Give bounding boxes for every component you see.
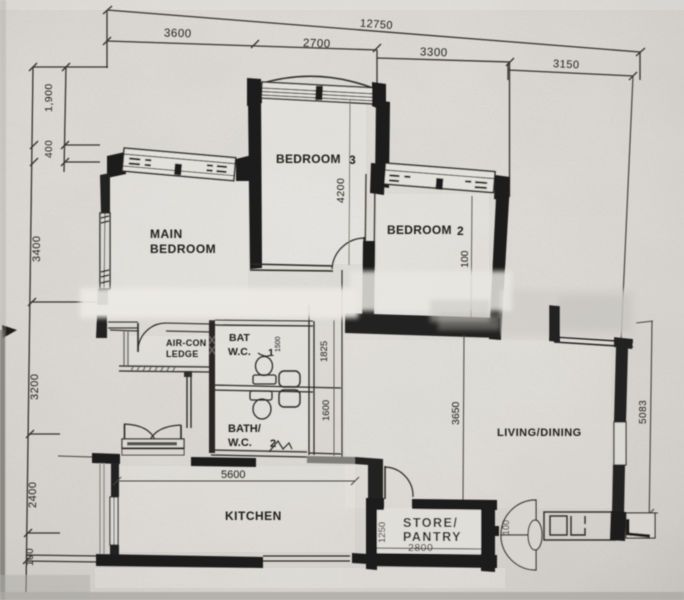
svg-text:3400: 3400 bbox=[31, 236, 43, 262]
svg-text:100: 100 bbox=[459, 250, 471, 268]
svg-text:MAIN: MAIN bbox=[150, 227, 183, 241]
svg-text:1: 1 bbox=[268, 347, 274, 359]
svg-text:1,900: 1,900 bbox=[43, 83, 55, 112]
svg-text:LIVING/DINING: LIVING/DINING bbox=[497, 427, 582, 439]
svg-text:1500: 1500 bbox=[275, 336, 282, 352]
svg-text:2800: 2800 bbox=[408, 542, 433, 554]
svg-text:400: 400 bbox=[44, 140, 55, 158]
svg-text:3150: 3150 bbox=[553, 58, 580, 71]
svg-text:3200: 3200 bbox=[29, 374, 41, 400]
svg-text:5083: 5083 bbox=[638, 400, 649, 424]
svg-text:12750: 12750 bbox=[360, 18, 394, 32]
svg-text:W.C.: W.C. bbox=[228, 437, 252, 449]
svg-text:2: 2 bbox=[457, 224, 464, 238]
svg-text:KITCHEN: KITCHEN bbox=[225, 509, 282, 523]
svg-text:AIR-CON: AIR-CON bbox=[166, 338, 207, 348]
svg-text:BATH/: BATH/ bbox=[228, 423, 261, 435]
svg-text:LEDGE: LEDGE bbox=[166, 349, 199, 359]
svg-text:3650: 3650 bbox=[450, 401, 462, 425]
svg-text:100: 100 bbox=[25, 548, 36, 566]
svg-text:100: 100 bbox=[501, 520, 511, 535]
svg-text:W.C.: W.C. bbox=[228, 346, 251, 358]
svg-text:1250: 1250 bbox=[377, 522, 388, 543]
svg-text:1600: 1600 bbox=[321, 400, 332, 421]
svg-text:STORE/: STORE/ bbox=[403, 516, 458, 530]
svg-text:1825: 1825 bbox=[319, 341, 330, 362]
svg-text:BAT: BAT bbox=[229, 332, 250, 344]
svg-text:4200: 4200 bbox=[335, 178, 347, 203]
svg-text:BEDROOM: BEDROOM bbox=[150, 242, 216, 256]
svg-text:BEDROOM: BEDROOM bbox=[276, 152, 341, 166]
svg-text:5600: 5600 bbox=[221, 469, 245, 481]
svg-text:2700: 2700 bbox=[303, 37, 331, 50]
svg-text:3600: 3600 bbox=[164, 27, 192, 40]
svg-text:2400: 2400 bbox=[27, 482, 39, 508]
svg-text:BEDROOM: BEDROOM bbox=[387, 223, 452, 237]
svg-text:3300: 3300 bbox=[420, 46, 448, 59]
